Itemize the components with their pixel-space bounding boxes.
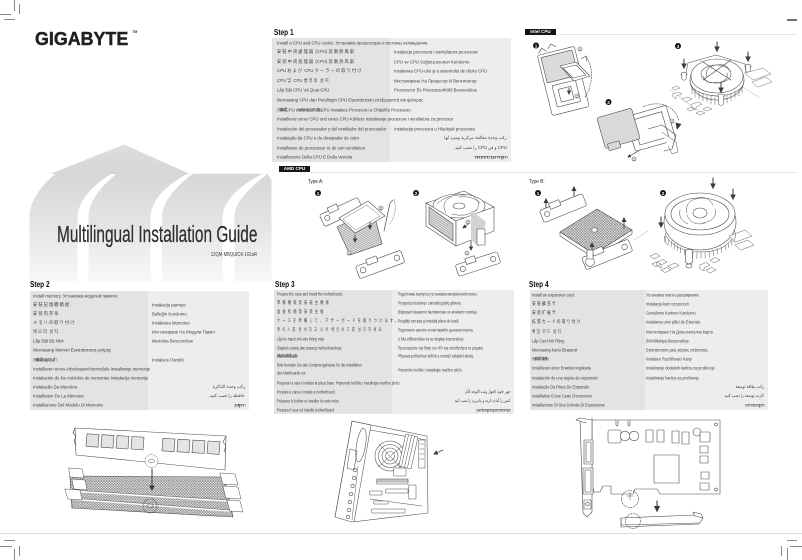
svg-text:3: 3 <box>677 44 680 49</box>
svg-text:1: 1 <box>317 191 320 196</box>
svg-text:1: 1 <box>537 191 540 196</box>
svg-text:1: 1 <box>535 44 538 49</box>
svg-text:2: 2 <box>607 100 610 105</box>
svg-text:2: 2 <box>415 191 418 196</box>
svg-text:2: 2 <box>662 191 665 196</box>
